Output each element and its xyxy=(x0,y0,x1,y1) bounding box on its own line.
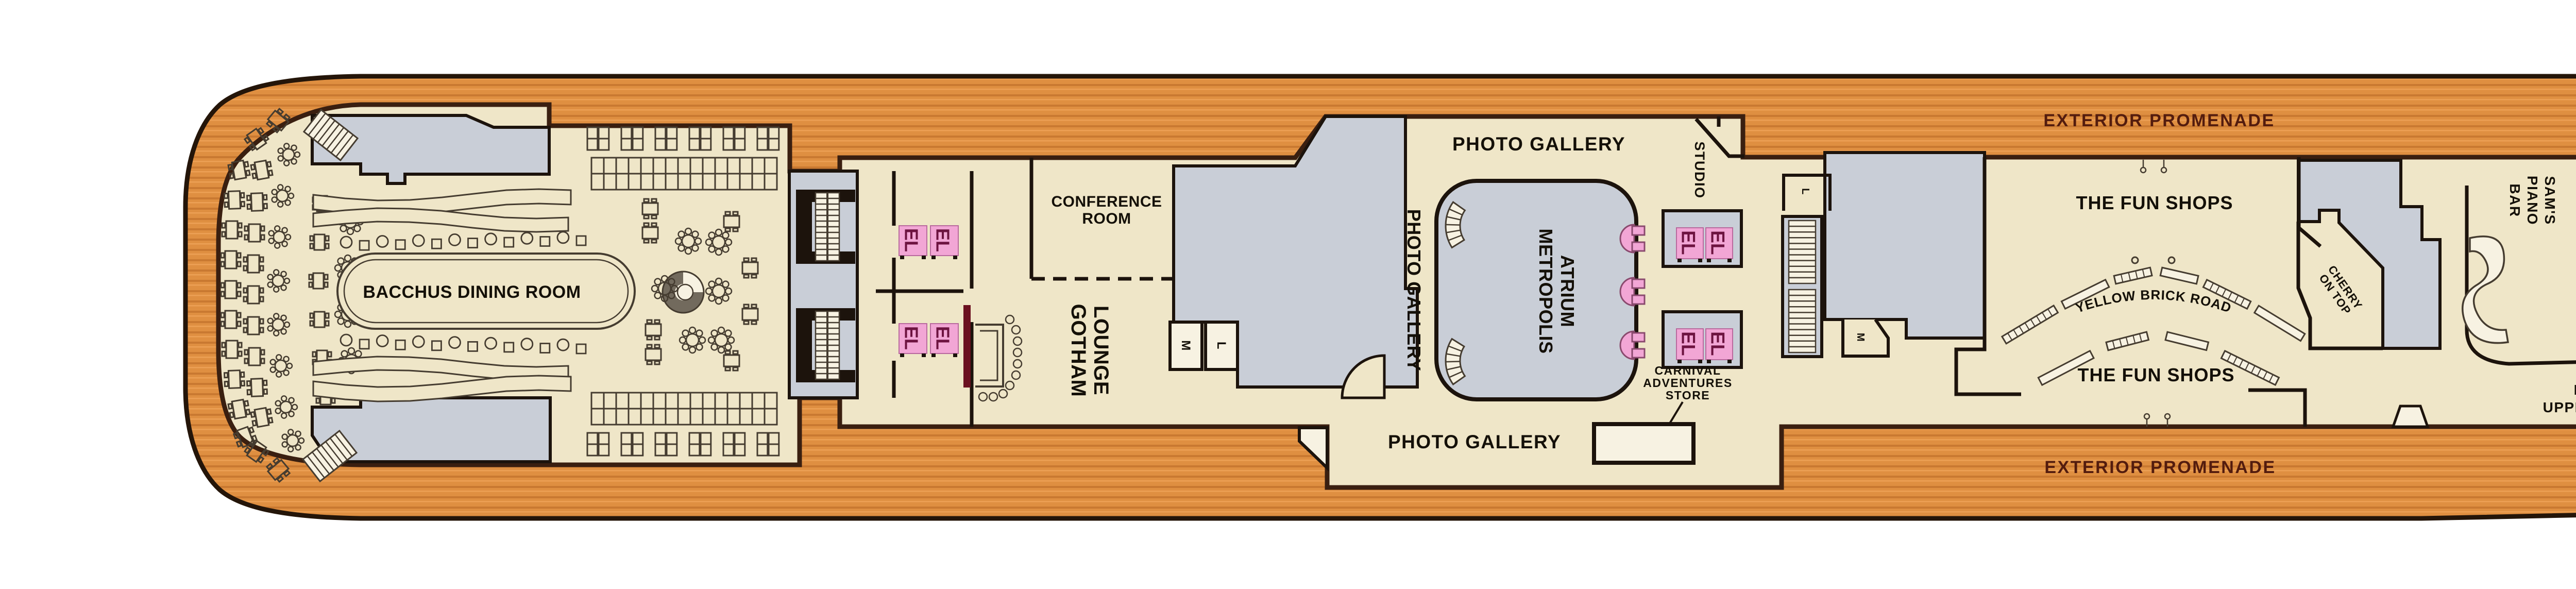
svg-text:CONFERENCE: CONFERENCE xyxy=(1051,193,1162,210)
svg-text:BACCHUS DINING ROOM: BACCHUS DINING ROOM xyxy=(363,282,581,302)
svg-text:UPPER PROMENADE: UPPER PROMENADE xyxy=(2543,399,2576,415)
svg-text:EL: EL xyxy=(1707,331,1728,356)
svg-text:EXTERIOR PROMENADE: EXTERIOR PROMENADE xyxy=(2043,111,2275,130)
svg-text:EL: EL xyxy=(1677,230,1699,255)
svg-text:M: M xyxy=(1855,333,1866,342)
svg-text:STUDIO: STUDIO xyxy=(1692,141,1707,198)
svg-text:THE FUN SHOPS: THE FUN SHOPS xyxy=(2077,364,2234,385)
svg-text:EL: EL xyxy=(901,228,922,252)
svg-text:THE FUN SHOPS: THE FUN SHOPS xyxy=(2076,192,2233,213)
svg-text:M: M xyxy=(1179,340,1193,351)
svg-text:L: L xyxy=(1214,342,1228,350)
svg-text:PIANO: PIANO xyxy=(2524,176,2540,225)
svg-text:KANE'S WAY: KANE'S WAY xyxy=(2574,382,2576,398)
svg-text:ROOM: ROOM xyxy=(1082,210,1131,227)
svg-text:ATRIUM: ATRIUM xyxy=(1557,255,1578,327)
svg-text:SAM'S: SAM'S xyxy=(2542,176,2558,225)
svg-text:PHOTO GALLERY: PHOTO GALLERY xyxy=(1403,209,1425,372)
svg-text:BAR: BAR xyxy=(2507,183,2523,217)
svg-text:PHOTO GALLERY: PHOTO GALLERY xyxy=(1388,431,1561,452)
svg-text:PHOTO GALLERY: PHOTO GALLERY xyxy=(1452,133,1625,155)
svg-text:ADVENTURES: ADVENTURES xyxy=(1643,376,1732,390)
svg-text:EL: EL xyxy=(932,228,953,252)
svg-text:EL: EL xyxy=(932,326,953,350)
svg-text:EXTERIOR PROMENADE: EXTERIOR PROMENADE xyxy=(2044,458,2276,477)
svg-text:EL: EL xyxy=(1707,230,1728,255)
svg-text:CARNIVAL: CARNIVAL xyxy=(1654,364,1721,377)
svg-text:GOTHAM: GOTHAM xyxy=(1067,304,1090,397)
svg-text:LOUNGE: LOUNGE xyxy=(1090,306,1112,395)
svg-text:L: L xyxy=(1800,188,1811,195)
svg-text:EL: EL xyxy=(1677,331,1699,356)
svg-text:METROPOLIS: METROPOLIS xyxy=(1535,228,1556,354)
svg-text:STORE: STORE xyxy=(1666,389,1710,402)
svg-text:EL: EL xyxy=(901,326,922,350)
